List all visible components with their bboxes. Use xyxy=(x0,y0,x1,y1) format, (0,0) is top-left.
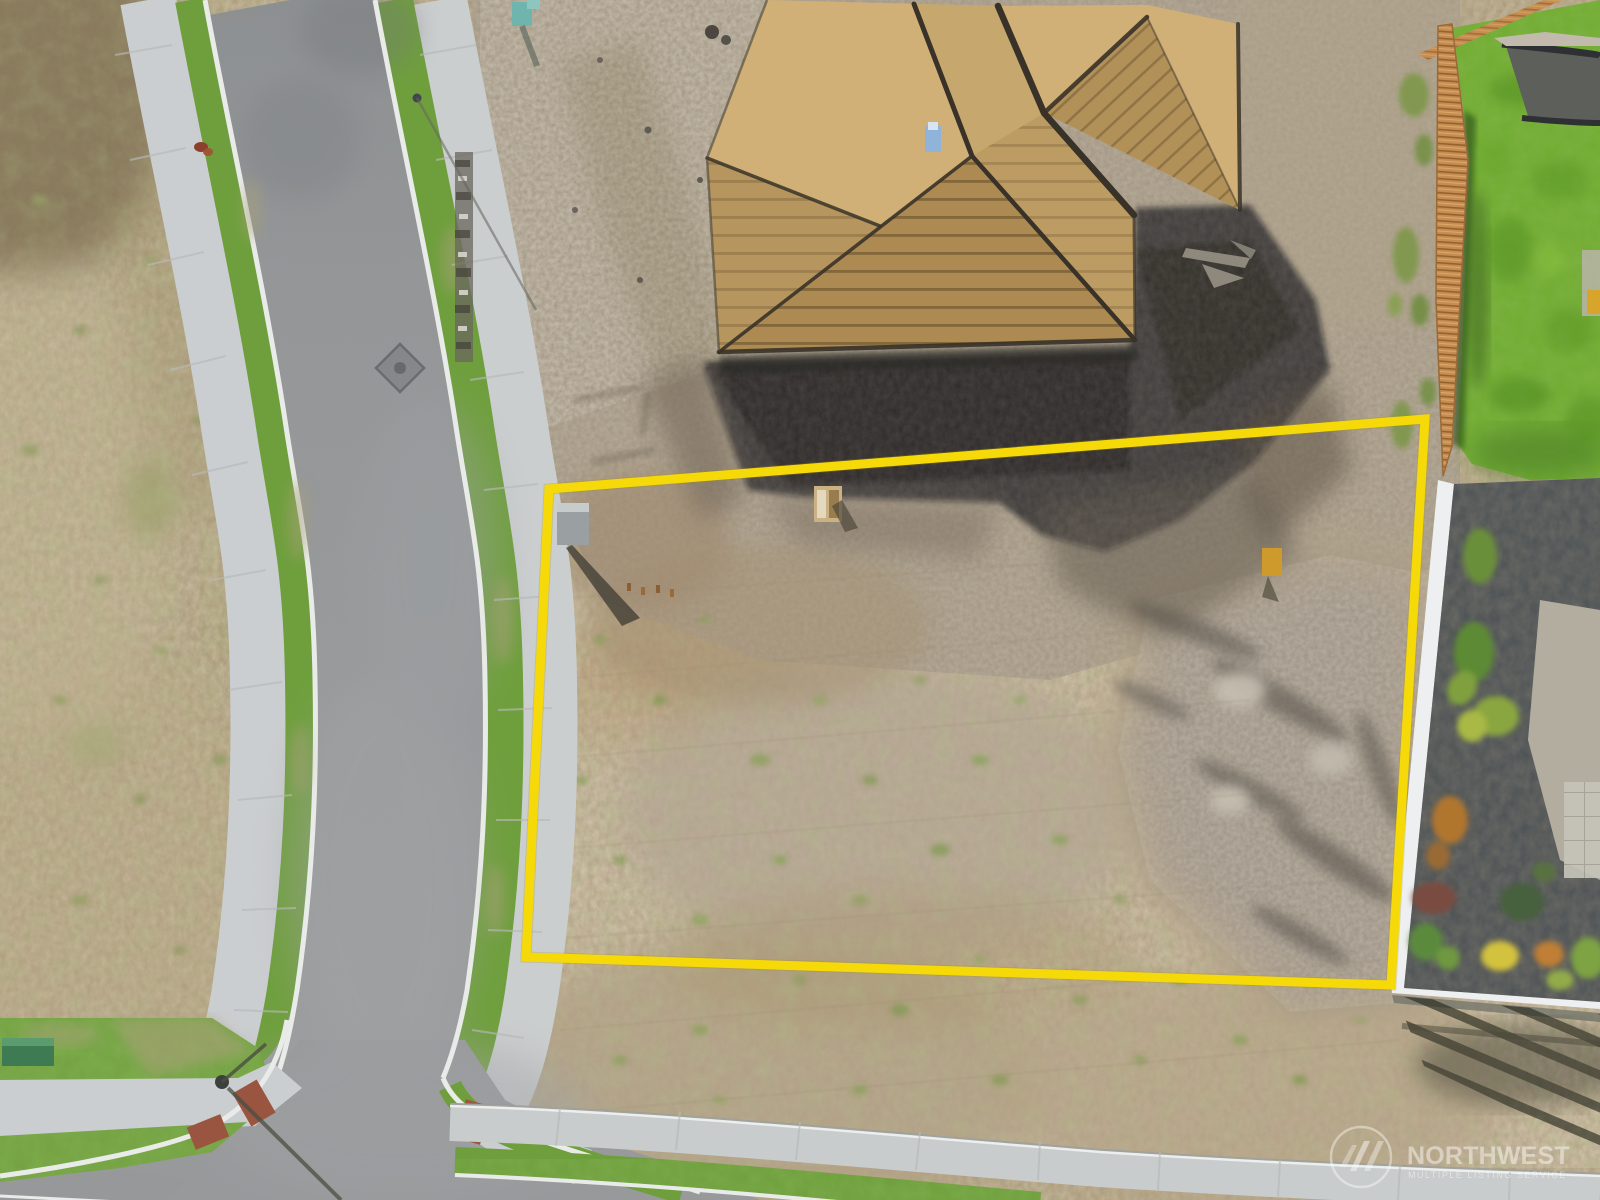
svg-text:NORTHWEST: NORTHWEST xyxy=(1407,1142,1570,1170)
svg-text:MULTIPLE LISTING SERVICE: MULTIPLE LISTING SERVICE xyxy=(1408,1170,1567,1180)
